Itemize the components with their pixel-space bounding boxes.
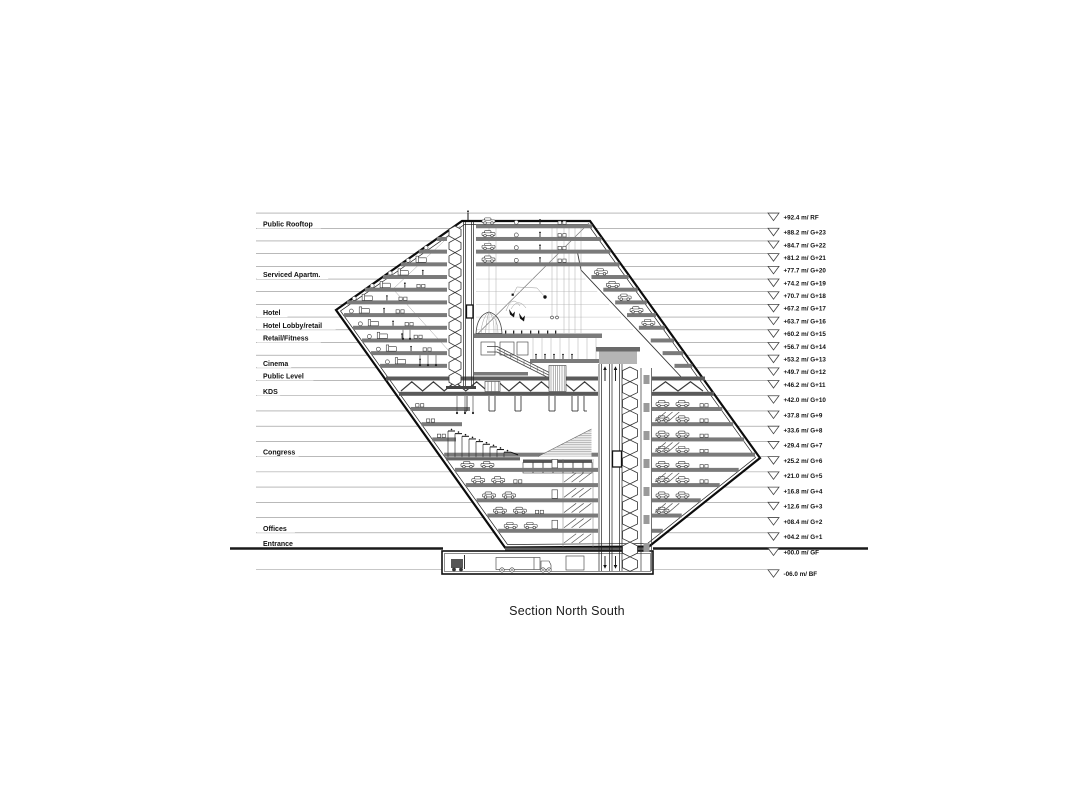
level-marker-G+4: +16.8 m/ G+4: [768, 487, 823, 495]
floor-label-text: Cinema: [263, 361, 288, 368]
level-label: +08.4 m/ G+2: [784, 519, 823, 526]
level-label: +16.8 m/ G+4: [784, 488, 823, 495]
level-marker-G+10: +42.0 m/ G+10: [768, 396, 826, 404]
level-label: +67.2 m/ G+17: [784, 306, 827, 313]
floor-label-G+12: Cinema: [257, 359, 291, 368]
floor-label-G+23: Public Rooftop: [257, 220, 321, 229]
level-label: +77.7 m/ G+20: [784, 268, 827, 275]
level-triangle-icon: [768, 330, 779, 338]
level-label: +70.7 m/ G+18: [784, 293, 827, 300]
floor-label-G+15: Hotel Lobby/retail: [257, 321, 336, 330]
floor-label-GF: Entrance: [263, 541, 293, 548]
level-marker-G+9: +37.8 m/ G+9: [768, 411, 823, 419]
drawing-sheet: +92.4 m/ RF+88.2 m/ G+23+84.7 m/ G+22+81…: [0, 0, 1067, 800]
level-triangle-icon: [768, 396, 779, 404]
level-triangle-icon: [768, 518, 779, 526]
elevator-car-icon: [613, 451, 622, 467]
level-marker-G+18: +70.7 m/ G+18: [768, 292, 826, 300]
level-label: +12.6 m/ G+3: [784, 504, 823, 511]
level-marker-G+3: +12.6 m/ G+3: [768, 502, 823, 510]
level-label: +04.2 m/ G+1: [784, 534, 823, 541]
level-marker-G+15: +60.2 m/ G+15: [768, 330, 826, 338]
floor-label-G+19: Serviced Apartm.: [257, 271, 328, 280]
level-label: +81.2 m/ G+21: [784, 255, 827, 262]
level-marker-G+21: +81.2 m/ G+21: [768, 254, 826, 262]
level-triangle-icon: [768, 254, 779, 262]
level-label: +63.7 m/ G+16: [784, 318, 827, 325]
level-triangle-icon: [768, 548, 779, 556]
floor-label-text: Entrance: [263, 541, 293, 548]
level-label: +84.7 m/ G+22: [784, 242, 827, 249]
level-marker-G+11: +46.2 m/ G+11: [768, 381, 826, 389]
level-marker-G+6: +25.2 m/ G+6: [768, 457, 823, 465]
basement-room: [566, 556, 584, 570]
level-label: +60.2 m/ G+15: [784, 331, 827, 338]
level-triangle-icon: [768, 279, 779, 287]
level-marker-G+14: +56.7 m/ G+14: [768, 342, 826, 350]
level-triangle-icon: [768, 241, 779, 249]
level-markers: +92.4 m/ RF+88.2 m/ G+23+84.7 m/ G+22+81…: [768, 213, 826, 578]
floor-label-text: Serviced Apartm.: [263, 272, 320, 279]
level-triangle-icon: [768, 441, 779, 449]
level-marker-G+2: +08.4 m/ G+2: [768, 518, 823, 526]
level-marker-G+19: +74.2 m/ G+19: [768, 279, 826, 287]
level-marker-G+12: +49.7 m/ G+12: [768, 368, 826, 376]
level-marker-G+17: +67.2 m/ G+17: [768, 304, 826, 312]
level-triangle-icon: [768, 426, 779, 434]
basement: [442, 551, 653, 574]
level-label: +74.2 m/ G+19: [784, 280, 827, 287]
level-label: +42.0 m/ G+10: [784, 397, 827, 404]
floor-label-text: Congress: [263, 450, 295, 457]
level-label: +49.7 m/ G+12: [784, 369, 827, 376]
floor-label-G+6: Congress: [257, 448, 299, 457]
level-triangle-icon: [768, 266, 779, 274]
cinema-box: [500, 342, 514, 355]
level-triangle-icon: [768, 570, 779, 578]
floor-label-text: Hotel Lobby/retail: [263, 323, 322, 330]
level-triangle-icon: [768, 502, 779, 510]
floor-label-text: Public Rooftop: [263, 221, 313, 228]
level-triangle-icon: [768, 368, 779, 376]
level-label: +25.2 m/ G+6: [784, 458, 823, 465]
level-marker-G+22: +84.7 m/ G+22: [768, 241, 826, 249]
level-triangle-icon: [768, 292, 779, 300]
level-triangle-icon: [768, 304, 779, 312]
level-marker-GF: +00.0 m/ GF: [768, 548, 819, 556]
floor-label-text: Hotel: [263, 310, 281, 317]
level-marker-G+7: +29.4 m/ G+7: [768, 441, 823, 449]
elevator-car-icon: [467, 305, 474, 318]
level-label: -06.0 m/ BF: [784, 571, 818, 578]
building-section: [336, 210, 760, 551]
floor-label-G+10: KDS: [257, 387, 280, 396]
level-marker-G+16: +63.7 m/ G+16: [768, 317, 826, 325]
level-label: +88.2 m/ G+23: [784, 230, 827, 237]
level-marker-G+20: +77.7 m/ G+20: [768, 266, 826, 274]
level-marker-BF: -06.0 m/ BF: [768, 570, 817, 578]
floor-labels: Public RooftopServiced Apartm.HotelHotel…: [257, 220, 336, 548]
level-triangle-icon: [768, 411, 779, 419]
level-label: +56.7 m/ G+14: [784, 344, 827, 351]
level-label: +92.4 m/ RF: [784, 214, 819, 221]
level-marker-G+1: +04.2 m/ G+1: [768, 533, 823, 541]
level-label: +00.0 m/ GF: [784, 549, 820, 556]
section-drawing: +92.4 m/ RF+88.2 m/ G+23+84.7 m/ G+22+81…: [0, 0, 1067, 800]
level-triangle-icon: [768, 355, 779, 363]
level-triangle-icon: [768, 381, 779, 389]
floor-label-G+11: Public Level: [257, 372, 313, 381]
level-marker-G+8: +33.6 m/ G+8: [768, 426, 823, 434]
floor-label-G+14: Retail/Fitness: [257, 334, 321, 343]
cinema-box: [517, 342, 528, 355]
level-label: +37.8 m/ G+9: [784, 412, 823, 419]
drawing-title: Section North South: [509, 604, 625, 618]
level-label: +21.0 m/ G+5: [784, 473, 823, 480]
level-label: +53.2 m/ G+13: [784, 356, 827, 363]
level-triangle-icon: [768, 457, 779, 465]
level-triangle-icon: [768, 213, 779, 221]
level-label: +46.2 m/ G+11: [784, 382, 827, 389]
level-triangle-icon: [768, 317, 779, 325]
level-marker-G+23: +88.2 m/ G+23: [768, 228, 826, 236]
floor-label-text: Public Level: [263, 374, 304, 381]
level-marker-G+5: +21.0 m/ G+5: [768, 472, 823, 480]
level-triangle-icon: [768, 487, 779, 495]
floor-label-G+1: Offices: [257, 524, 295, 533]
floor-label-text: KDS: [263, 389, 278, 396]
level-marker-G+13: +53.2 m/ G+13: [768, 355, 826, 363]
floor-label-text: Retail/Fitness: [263, 335, 309, 342]
cinema-box: [481, 342, 495, 355]
level-marker-RF: +92.4 m/ RF: [768, 213, 819, 221]
level-triangle-icon: [768, 533, 779, 541]
core-cap: [599, 352, 637, 365]
floor-label-text: Offices: [263, 526, 287, 533]
level-label: +29.4 m/ G+7: [784, 443, 823, 450]
floor-label-G+16: Hotel: [257, 309, 288, 318]
level-triangle-icon: [768, 472, 779, 480]
level-label: +33.6 m/ G+8: [784, 428, 823, 435]
level-triangle-icon: [768, 228, 779, 236]
level-triangle-icon: [768, 342, 779, 350]
